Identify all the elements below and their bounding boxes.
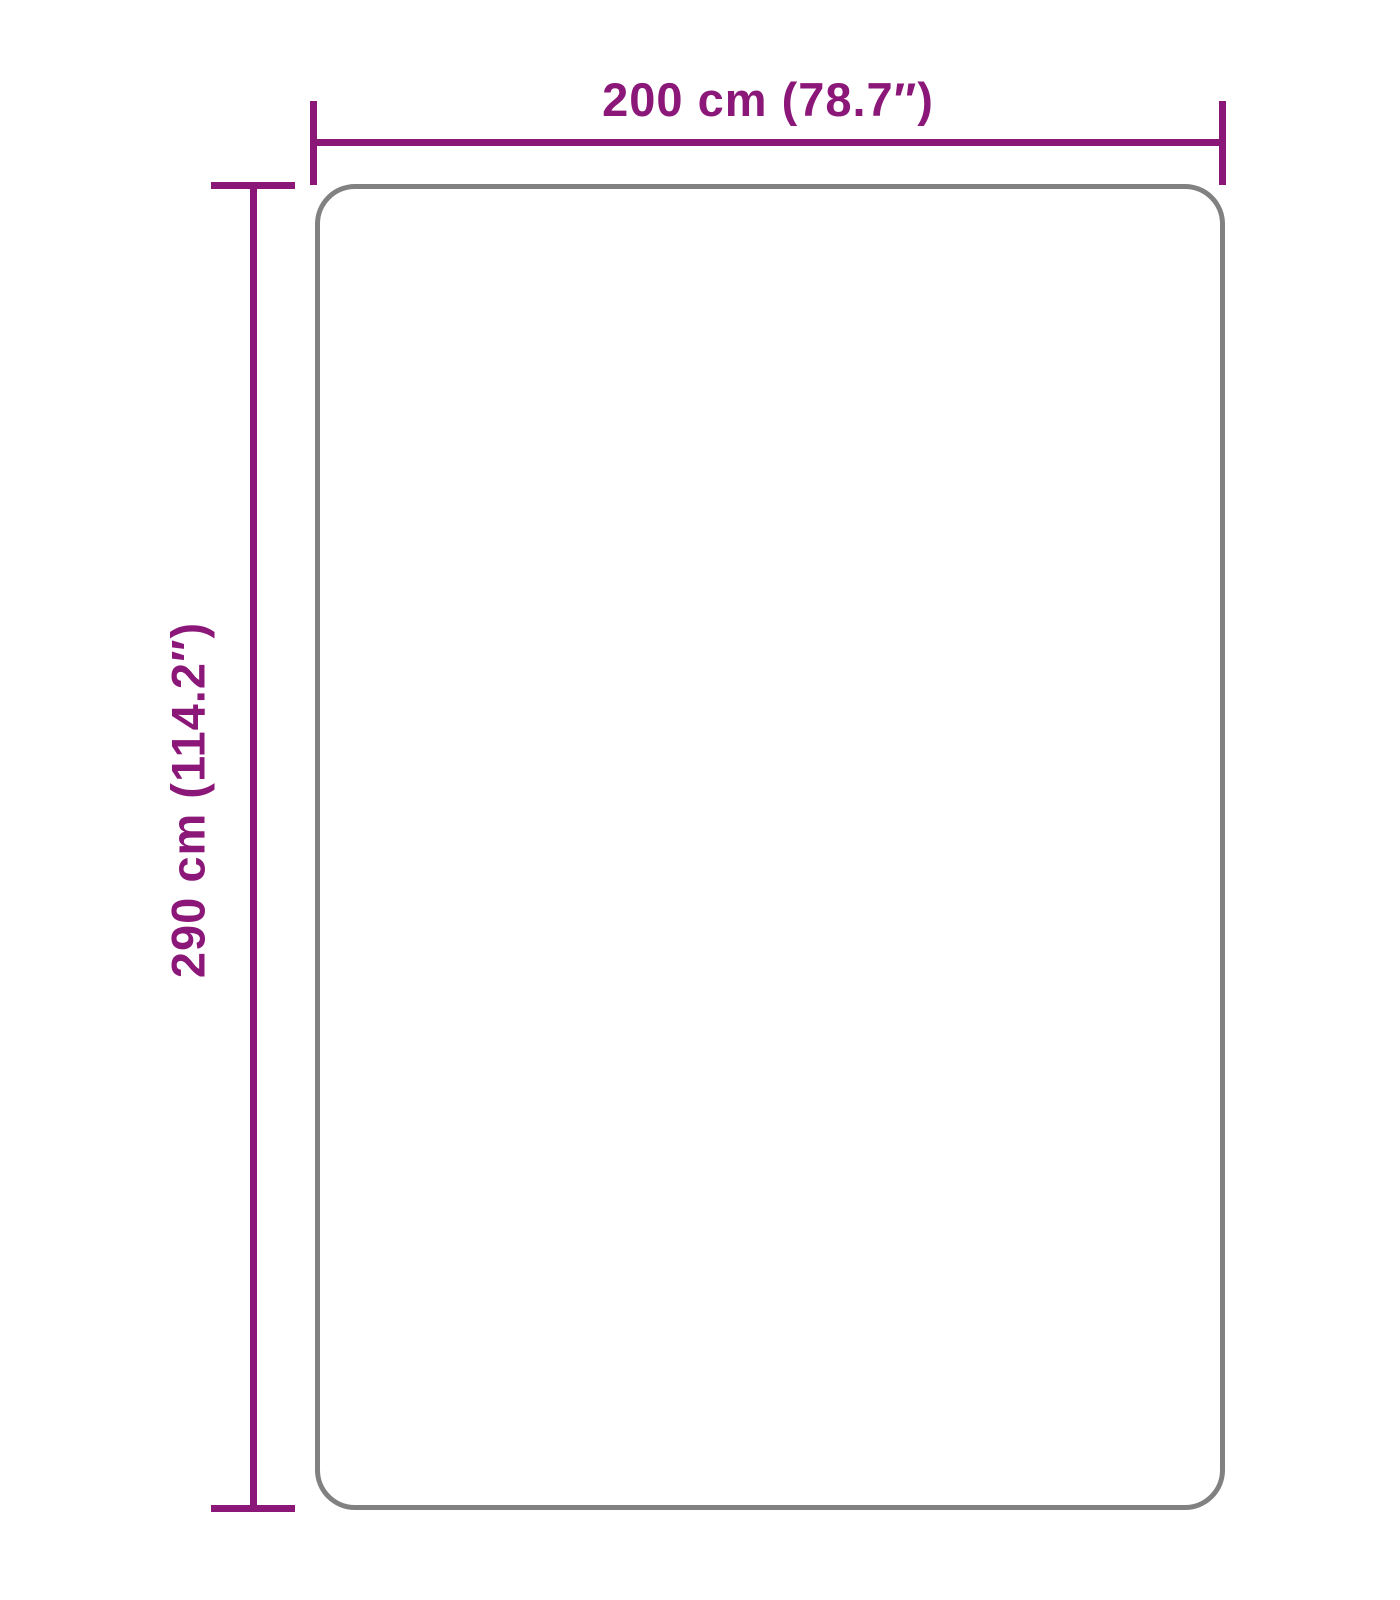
height-dimension-bottom-tick [211, 1505, 295, 1512]
height-dimension-label: 290 cm (114.2″) [161, 622, 216, 978]
height-dimension-line [250, 185, 257, 1509]
product-outline [315, 184, 1225, 1510]
height-dimension-top-tick [211, 182, 295, 189]
width-dimension-line [313, 139, 1223, 146]
dimension-diagram: 200 cm (78.7″) 290 cm (114.2″) [0, 0, 1400, 1600]
width-dimension-label: 200 cm (78.7″) [313, 72, 1223, 127]
